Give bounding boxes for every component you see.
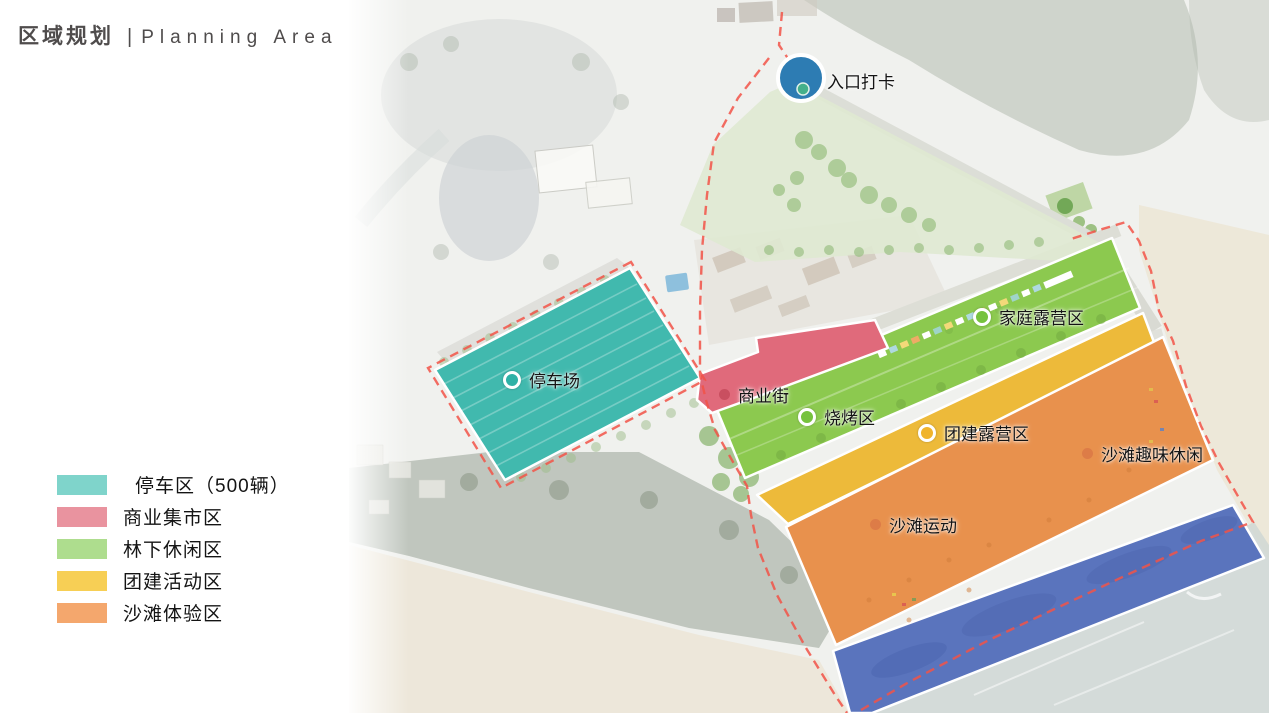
legend-item-forest-leisure: 林下休闲区 — [57, 538, 290, 559]
legend-swatch-parking — [57, 475, 107, 495]
map-label-family-camping: 家庭露营区 — [973, 304, 1084, 329]
legend-label: 团建活动区 — [123, 567, 223, 594]
map-label-text: 沙滩运动 — [889, 512, 957, 537]
map-label-text: 家庭露营区 — [999, 304, 1084, 329]
map-label-text: 沙滩趣味休闲 — [1101, 441, 1203, 466]
commercial-street-marker-icon — [719, 389, 730, 400]
legend-label: 商业集市区 — [123, 503, 223, 530]
legend-swatch-forest-leisure — [57, 539, 107, 559]
beach-sports-marker-icon — [870, 519, 881, 530]
legend: 停车区（500辆） 商业集市区 林下休闲区 团建活动区 沙滩体验区 — [57, 474, 290, 634]
legend-item-beach-experience: 沙滩体验区 — [57, 602, 290, 623]
legend-label: 林下休闲区 — [123, 535, 223, 562]
map-label-text: 团建露营区 — [944, 420, 1029, 445]
beach-fun-marker-icon — [1082, 448, 1093, 459]
legend-label: 沙滩体验区 — [123, 599, 223, 626]
map-label-entrance-checkin: 入口打卡 — [827, 68, 895, 93]
map-label-team-camping: 团建露营区 — [918, 420, 1029, 445]
map-label-beach-sports: 沙滩运动 — [870, 512, 957, 537]
legend-item-team-building: 团建活动区 — [57, 570, 290, 591]
map-label-text: 入口打卡 — [827, 68, 895, 93]
pool — [665, 273, 689, 293]
title-divider: | — [127, 26, 132, 49]
legend-swatch-team-building — [57, 571, 107, 591]
map-label-commercial-street: 商业街 — [719, 382, 789, 407]
map-label-parking-lot: 停车场 — [503, 367, 580, 392]
legend-swatch-commercial — [57, 507, 107, 527]
site-plan-map: 入口打卡 家庭露营区 停车场 商业街 烧烤区 团建露营区 沙滩趣味休闲 沙滩运 — [349, 0, 1269, 713]
map-label-text: 烧烤区 — [824, 404, 875, 429]
bbq-area-marker-icon — [798, 408, 816, 426]
entrance-marker — [778, 55, 824, 101]
page-title-en: Planning Area — [141, 27, 337, 49]
team-camping-marker-icon — [918, 424, 936, 442]
family-camping-marker-icon — [973, 308, 991, 326]
page-title-zh: 区域规划 — [18, 20, 114, 50]
parking-lot-marker-icon — [503, 371, 521, 389]
map-label-beach-fun: 沙滩趣味休闲 — [1082, 441, 1203, 466]
map-label-bbq-area: 烧烤区 — [798, 404, 875, 429]
map-label-text: 商业街 — [738, 382, 789, 407]
map-label-text: 停车场 — [529, 367, 580, 392]
legend-label: 停车区（500辆） — [135, 471, 290, 498]
page-title: 区域规划 | Planning Area — [18, 20, 338, 50]
legend-swatch-beach-experience — [57, 603, 107, 623]
site-plan-canvas — [349, 0, 1269, 713]
left-panel: 区域规划 | Planning Area 停车区（500辆） 商业集市区 林下休… — [0, 0, 349, 713]
entrance-dot-icon — [797, 83, 809, 95]
legend-item-commercial: 商业集市区 — [57, 506, 290, 527]
legend-item-parking: 停车区（500辆） — [57, 474, 290, 495]
planning-area-slide: 入口打卡 家庭露营区 停车场 商业街 烧烤区 团建露营区 沙滩趣味休闲 沙滩运 — [0, 0, 1269, 713]
